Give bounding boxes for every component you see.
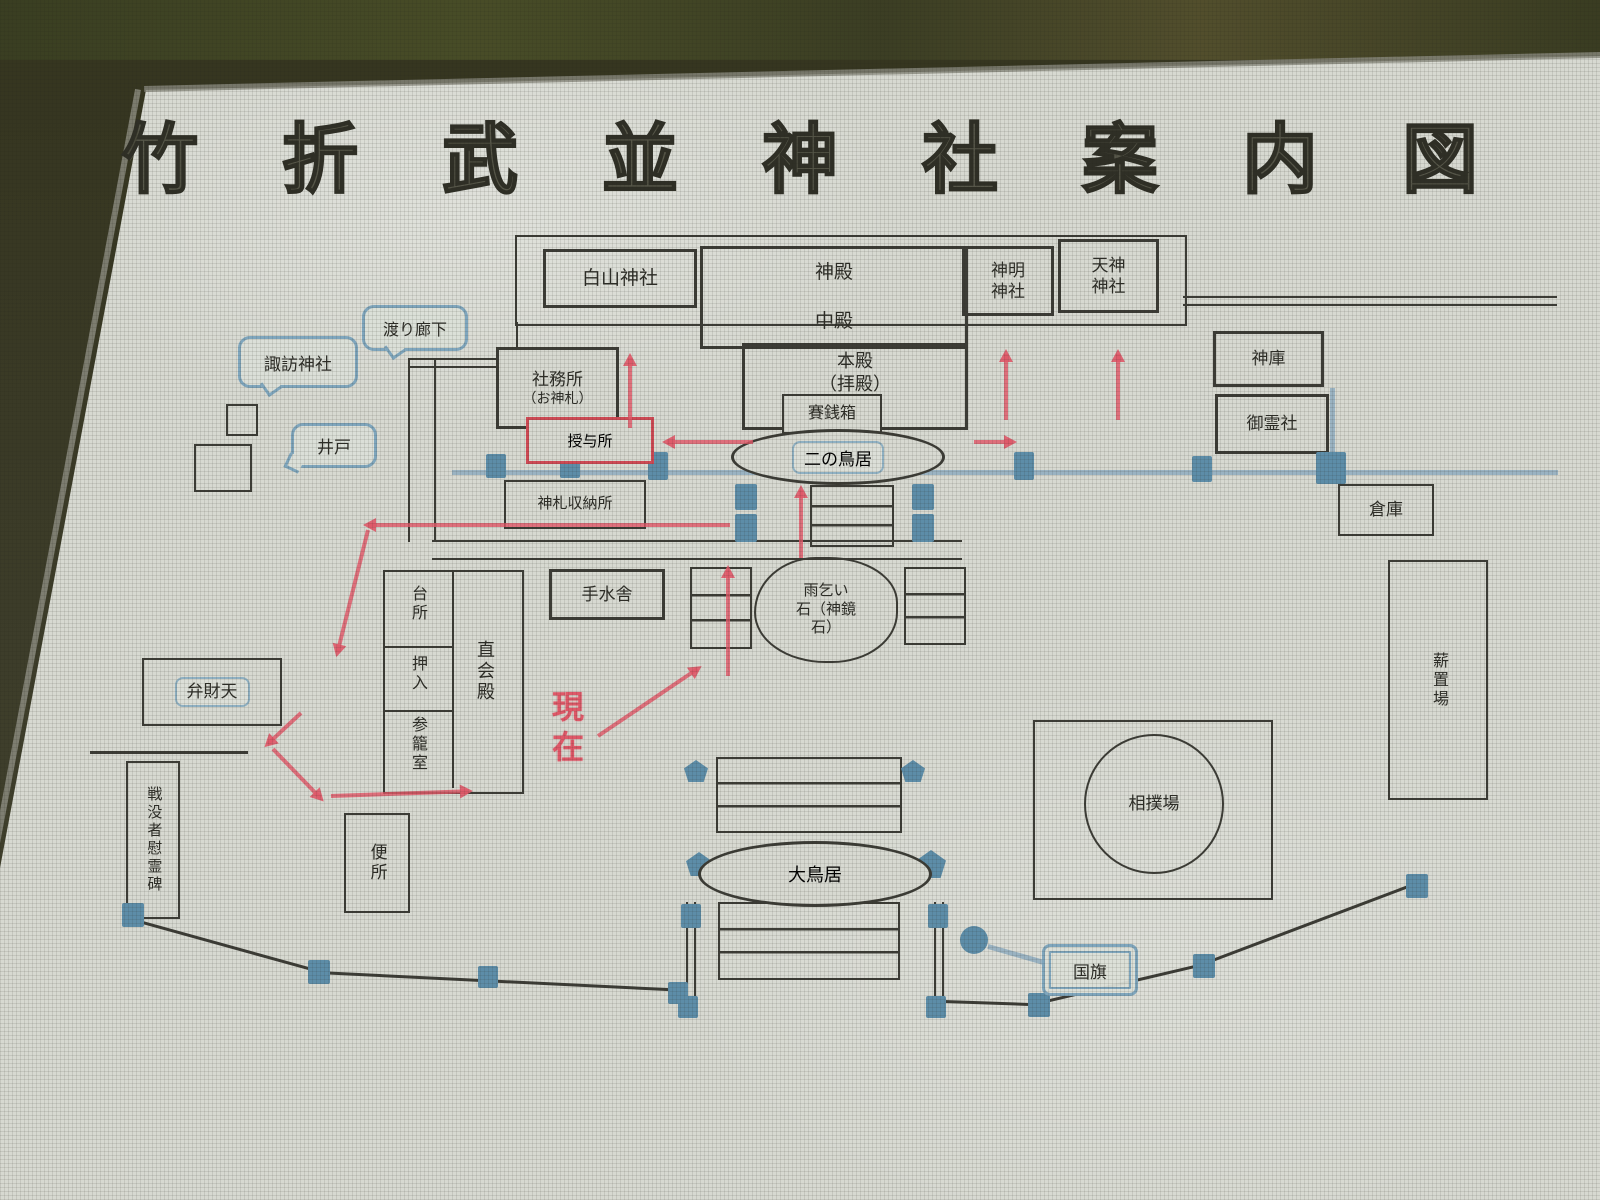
old-amulet-deposit: 神札収納所 <box>504 480 646 529</box>
sacred-storehouse: 神庫 <box>1213 331 1324 387</box>
corridor-bubble: 渡り廊下 <box>362 305 468 351</box>
sign-title: 竹折武並神社案内図 <box>122 98 1562 208</box>
water-basin: 手水舎 <box>549 569 665 620</box>
ido-label: 井戸 <box>317 433 351 458</box>
chuden-label: 中殿 <box>815 310 853 334</box>
retreat-room-label: 参籠室 <box>405 716 429 773</box>
kitchen-label: 台所 <box>405 585 429 623</box>
big-torii: 大鳥居 <box>698 841 932 907</box>
blue-post <box>1014 452 1034 480</box>
route-arrow <box>974 440 1012 444</box>
approach-post <box>678 996 698 1018</box>
benzaiten-label: 弁財天 <box>175 677 250 706</box>
toilet: 便所 <box>344 813 410 913</box>
tenjin-shrine: 天神 神社 <box>1058 239 1159 313</box>
well-bubble: 井戸 <box>291 423 377 468</box>
suwa-label: 諏訪神社 <box>264 350 332 375</box>
small-shrine-box-2 <box>194 444 252 492</box>
route-arrow <box>667 440 753 444</box>
background-foliage <box>0 0 1600 60</box>
blue-post <box>1316 452 1346 484</box>
ni-no-torii-label: 二の鳥居 <box>792 441 884 474</box>
blue-post <box>1192 456 1212 482</box>
approach-steps-upper <box>716 757 902 833</box>
blue-post <box>486 454 506 478</box>
fence-post <box>1406 874 1428 898</box>
fence-post <box>122 903 144 927</box>
benjo-label: 便所 <box>366 843 387 883</box>
watari-roka-label: 渡り廊下 <box>383 316 447 340</box>
route-arrow <box>726 570 730 676</box>
courtyard-stairs-left <box>690 567 752 649</box>
small-shrine-box-1 <box>226 404 258 436</box>
tenjin-label-1: 天神 <box>1092 255 1126 276</box>
naoraiden-label: 直会殿 <box>472 640 498 703</box>
amagoi-label-1: 雨乞い <box>803 582 848 601</box>
upper-right-fence <box>1183 296 1557 306</box>
tenjin-label-2: 神社 <box>1092 276 1126 297</box>
closet-label: 押入 <box>405 655 429 693</box>
central-stairs <box>810 485 894 547</box>
torii-pillar-left <box>735 514 757 542</box>
shinden-label: 神殿 <box>815 261 853 285</box>
goreisha-label: 御霊社 <box>1247 413 1298 434</box>
fence-post <box>478 966 498 988</box>
makiokiba-label: 薪置場 <box>1428 652 1448 709</box>
amagoi-label-2: 石（神鏡 <box>796 601 856 620</box>
route-arrow <box>1004 354 1008 420</box>
sumoba-label: 相撲場 <box>1129 793 1180 814</box>
fence-post <box>308 960 330 984</box>
route-arrow <box>1116 354 1120 420</box>
second-torii: 二の鳥居 <box>731 429 945 485</box>
goreisha-shrine: 御霊社 <box>1215 394 1329 454</box>
main-hall-upper: 神殿 中殿 <box>700 246 968 349</box>
shamusho-label-2: （お神札） <box>523 390 593 408</box>
approach-post <box>926 996 946 1018</box>
firewood-yard: 薪置場 <box>1388 560 1488 800</box>
route-arrow <box>628 358 632 428</box>
approach-steps-lower <box>718 902 900 980</box>
amulet-office: 授与所 <box>526 417 654 464</box>
flagpole <box>960 926 988 954</box>
kokki-label: 国旗 <box>1073 958 1107 983</box>
ireihi-label: 戦没者慰霊碑 <box>144 786 163 894</box>
rain-stone: 雨乞い 石（神鏡 石） <box>754 557 898 663</box>
torii-pillar-right <box>912 484 934 510</box>
saisenbako-label: 賽銭箱 <box>808 404 856 424</box>
corridor <box>408 360 436 542</box>
approach-post <box>928 904 948 928</box>
temizusha-label: 手水舎 <box>582 584 633 605</box>
west-fence <box>90 751 248 754</box>
shamusho-label-1: 社務所 <box>532 369 583 390</box>
sumo-ring: 相撲場 <box>1084 734 1224 874</box>
torii-pillar-left <box>735 484 757 510</box>
fence-post <box>1193 954 1215 978</box>
honden-label: 本殿 <box>837 350 873 373</box>
flag-bubble: 国旗 <box>1042 944 1138 996</box>
route-arrow <box>799 490 803 558</box>
current-location-marker: 現在 <box>543 690 589 770</box>
main-path <box>452 470 1558 475</box>
suwa-bubble: 諏訪神社 <box>238 336 358 388</box>
route-arrow <box>368 523 730 527</box>
shinsatsu-label: 神札収納所 <box>537 495 612 514</box>
benzaiten-outer: 弁財天 <box>142 658 282 726</box>
war-memorial: 戦没者慰霊碑 <box>126 761 180 919</box>
hakusan-shrine: 白山神社 <box>543 249 697 308</box>
shrine-sign-photo: 竹折武並神社案内図 白山神社 神殿 中殿 本殿 （拝殿） 神明 神社 天神 神社… <box>0 0 1600 1200</box>
shinmei-label-2: 神社 <box>991 281 1025 302</box>
hakusan-label: 白山神社 <box>582 267 658 291</box>
shinko-label: 神庫 <box>1252 348 1286 369</box>
courtyard-stairs-right <box>904 567 966 645</box>
fence-post <box>1028 993 1050 1017</box>
o-torii-label: 大鳥居 <box>788 861 842 887</box>
offering-box: 賽銭箱 <box>782 394 882 434</box>
shinmei-label-1: 神明 <box>991 260 1025 281</box>
warehouse: 倉庫 <box>1338 484 1434 536</box>
shinmei-shrine: 神明 神社 <box>962 246 1054 316</box>
torii-pillar-right <box>912 514 934 542</box>
approach-post <box>681 904 701 928</box>
amagoi-label-3: 石） <box>811 619 841 638</box>
soko-label: 倉庫 <box>1369 499 1403 520</box>
haiden-label: （拝殿） <box>819 373 891 396</box>
juyosho-label: 授与所 <box>567 430 612 451</box>
